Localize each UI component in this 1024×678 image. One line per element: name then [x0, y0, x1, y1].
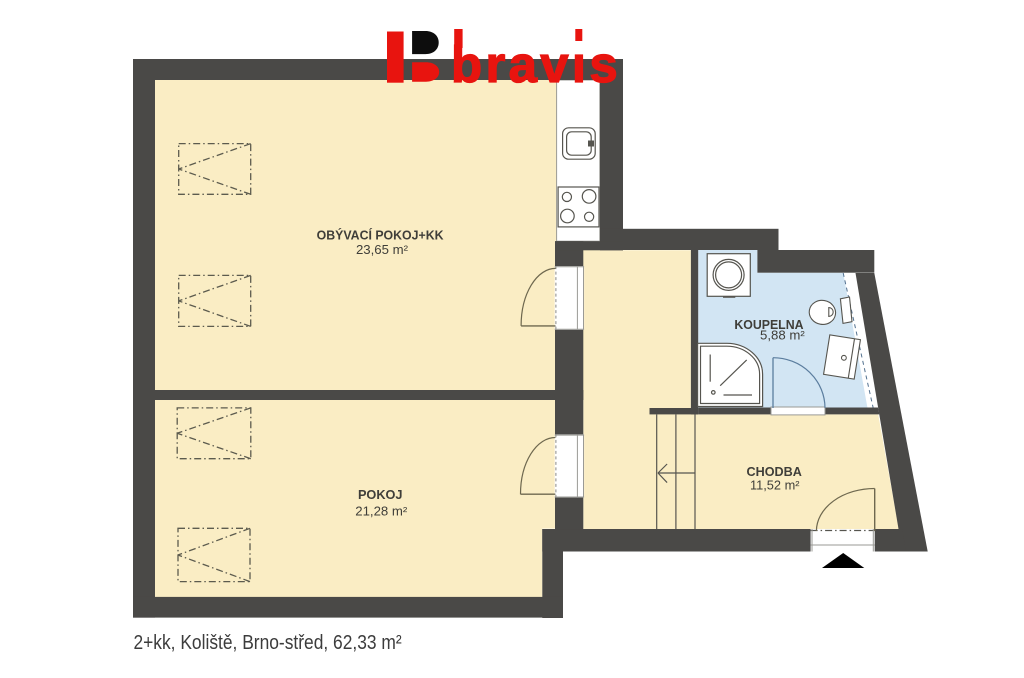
svg-text:21,28 m²: 21,28 m² [355, 504, 408, 519]
svg-text:5,88 m²: 5,88 m² [760, 328, 805, 343]
svg-text:2+kk, Koliště, Brno-střed, 62,: 2+kk, Koliště, Brno-střed, 62,33 m² [133, 631, 401, 653]
svg-text:bravis: bravis [451, 36, 621, 93]
svg-text:11,52 m²: 11,52 m² [750, 477, 800, 492]
svg-text:POKOJ: POKOJ [358, 487, 403, 502]
svg-text:23,65 m²: 23,65 m² [356, 242, 409, 257]
svg-text:OBÝVACÍ POKOJ+KK: OBÝVACÍ POKOJ+KK [317, 227, 445, 242]
